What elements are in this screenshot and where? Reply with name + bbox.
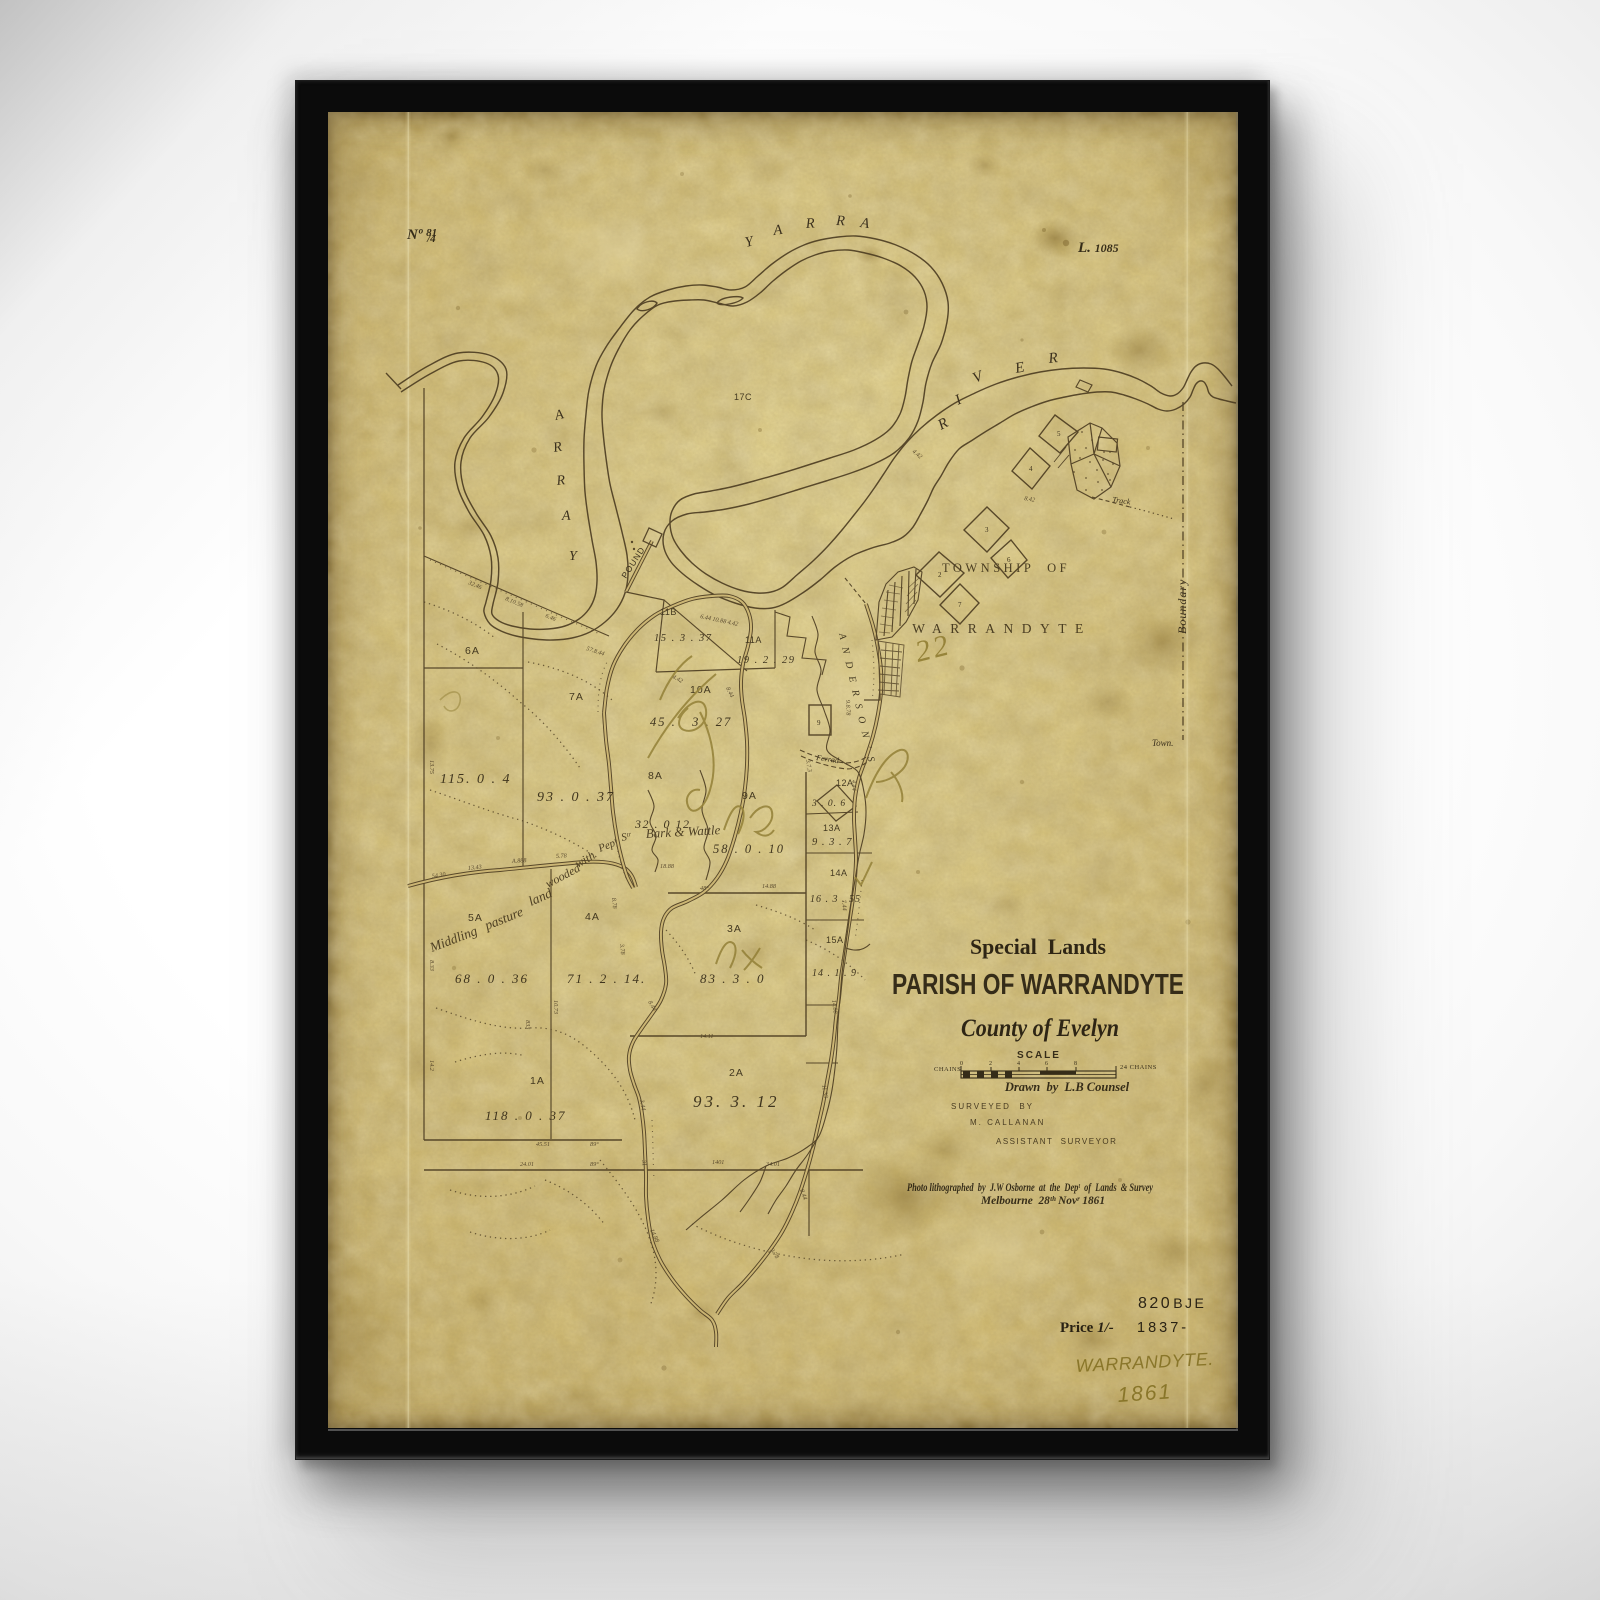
svg-text:833: 833	[524, 1020, 531, 1029]
svg-text:2A: 2A	[729, 1067, 744, 1079]
svg-text:4: 4	[1029, 465, 1033, 473]
svg-text:89°: 89°	[590, 1141, 599, 1148]
svg-text:5.78: 5.78	[556, 852, 568, 860]
svg-text:9 . 3 . 7: 9 . 3 . 7	[812, 837, 853, 848]
svg-text:11B: 11B	[660, 607, 677, 617]
svg-text:1401: 1401	[712, 1159, 724, 1166]
svg-text:1A: 1A	[530, 1075, 545, 1087]
svg-text:Nº 81/4: Nº 81/4	[406, 227, 437, 245]
svg-text:8.78: 8.78	[610, 897, 618, 909]
svg-text:15 . 3 . 37: 15 . 3 . 37	[654, 633, 713, 644]
svg-text:71 . 2 . 14.: 71 . 2 . 14.	[567, 971, 646, 986]
svg-text:34.01: 34.01	[765, 1161, 780, 1168]
svg-text:5A: 5A	[468, 912, 483, 924]
svg-text:48°: 48°	[700, 885, 709, 892]
svg-text:Photo lithographed by J.W Os: Photo lithographed by J.W Osborne at the…	[907, 1180, 1153, 1194]
svg-text:8A: 8A	[648, 770, 663, 782]
svg-text:SCALE: SCALE	[1017, 1050, 1061, 1061]
svg-text:7A: 7A	[569, 691, 584, 703]
svg-text:11A: 11A	[745, 635, 762, 645]
svg-text:A: A	[859, 215, 871, 232]
svg-text:3 . 0. 6: 3 . 0. 6	[811, 799, 846, 809]
svg-text:13A: 13A	[823, 823, 841, 833]
svg-text:2: 2	[989, 1061, 992, 1067]
svg-text:Price 1/-: Price 1/-	[1060, 1320, 1114, 1336]
svg-text:Special Lands: Special Lands	[970, 934, 1106, 959]
svg-text:3.78: 3.78	[618, 942, 626, 955]
svg-text:8.33: 8.33	[428, 960, 435, 971]
svg-text:3A: 3A	[727, 923, 742, 935]
svg-text:5: 5	[1057, 430, 1061, 438]
svg-text:14.88: 14.88	[762, 883, 777, 890]
svg-text:24 CHAINS: 24 CHAINS	[1120, 1064, 1157, 1071]
svg-text:18.88: 18.88	[660, 863, 675, 870]
svg-text:14.2: 14.2	[428, 1060, 435, 1071]
svg-text:14A: 14A	[830, 868, 848, 878]
svg-text:68 . 0 . 36: 68 . 0 . 36	[455, 971, 529, 986]
svg-text:24.01: 24.01	[520, 1161, 534, 1168]
svg-text:7: 7	[958, 601, 962, 609]
svg-text:45 . 3 . 27: 45 . 3 . 27	[650, 715, 732, 729]
svg-text:4A: 4A	[585, 911, 600, 923]
svg-text:Drawn by L.B Counsel: Drawn by L.B Counsel	[1004, 1080, 1130, 1094]
svg-text:CHAINS: CHAINS	[934, 1066, 961, 1073]
svg-text:R: R	[1047, 350, 1059, 367]
svg-text:SURVEYED BY: SURVEYED BY	[951, 1102, 1034, 1111]
svg-text:6A: 6A	[465, 645, 480, 657]
svg-text:ASSISTANT SURVEYOR: ASSISTANT SURVEYOR	[996, 1137, 1117, 1146]
svg-text:County of Evelyn: County of Evelyn	[961, 1015, 1119, 1042]
svg-text:TOWNSHIP OF: TOWNSHIP OF	[942, 561, 1070, 575]
svg-text:9: 9	[817, 719, 821, 727]
svg-text:9.8.78: 9.8.78	[844, 700, 852, 717]
svg-text:14.11: 14.11	[700, 1033, 713, 1040]
svg-text:8: 8	[1074, 1061, 1077, 1067]
svg-text:45.51: 45.51	[536, 1141, 550, 1148]
svg-text:M. CALLANAN: M. CALLANAN	[970, 1118, 1045, 1127]
svg-text:13.75: 13.75	[428, 760, 435, 774]
svg-text:A: A	[561, 509, 572, 524]
svg-text:89°: 89°	[590, 1161, 599, 1168]
svg-text:4.44: 4.44	[850, 780, 857, 791]
svg-text:4: 4	[1017, 1061, 1020, 1067]
svg-text:83 . 3 . 0: 83 . 3 . 0	[700, 971, 766, 986]
svg-text:PARISH OF WARRANDYTE: PARISH OF WARRANDYTE	[892, 969, 1184, 1001]
svg-text:Boundary: Boundary	[1175, 579, 1189, 634]
svg-text:93 . 0 . 37: 93 . 0 . 37	[537, 790, 615, 805]
svg-text:1837-: 1837-	[1137, 1320, 1189, 1336]
svg-text:Melbourne 28ᵗʰ Novʳ 1861: Melbourne 28ᵗʰ Novʳ 1861	[980, 1193, 1105, 1207]
svg-text:A.888: A.888	[511, 857, 528, 865]
svg-text:15A: 15A	[826, 935, 844, 945]
svg-text:L. 1085: L. 1085	[1077, 240, 1119, 256]
svg-text:3: 3	[985, 526, 989, 534]
svg-text:9A: 9A	[742, 790, 757, 802]
svg-text:58 . 0 . 10: 58 . 0 . 10	[713, 842, 785, 856]
svg-text:13.43: 13.43	[467, 864, 482, 872]
svg-text:7.44: 7.44	[840, 900, 848, 911]
svg-text:14 . 1 . 9: 14 . 1 . 9	[812, 968, 857, 979]
svg-text:16 . 3 . 55: 16 . 3 . 55	[810, 894, 861, 905]
svg-text:6: 6	[1045, 1061, 1048, 1067]
svg-text:31: 31	[640, 1158, 648, 1166]
svg-text:10.73: 10.73	[552, 1000, 559, 1014]
svg-text:R: R	[804, 216, 815, 233]
svg-text:118 . 0 . 37: 118 . 0 . 37	[485, 1108, 567, 1123]
svg-text:93. 3. 12: 93. 3. 12	[693, 1092, 780, 1111]
svg-text:1861: 1861	[1117, 1380, 1173, 1407]
svg-text:Town.: Town.	[1152, 738, 1173, 748]
svg-text:R: R	[835, 213, 846, 229]
svg-text:115. 0 . 4: 115. 0 . 4	[440, 772, 511, 787]
svg-text:17C: 17C	[734, 392, 752, 402]
svg-text:820BJE: 820BJE	[1138, 1295, 1206, 1312]
svg-text:19 . 2 . 29: 19 . 2 . 29	[737, 655, 796, 666]
